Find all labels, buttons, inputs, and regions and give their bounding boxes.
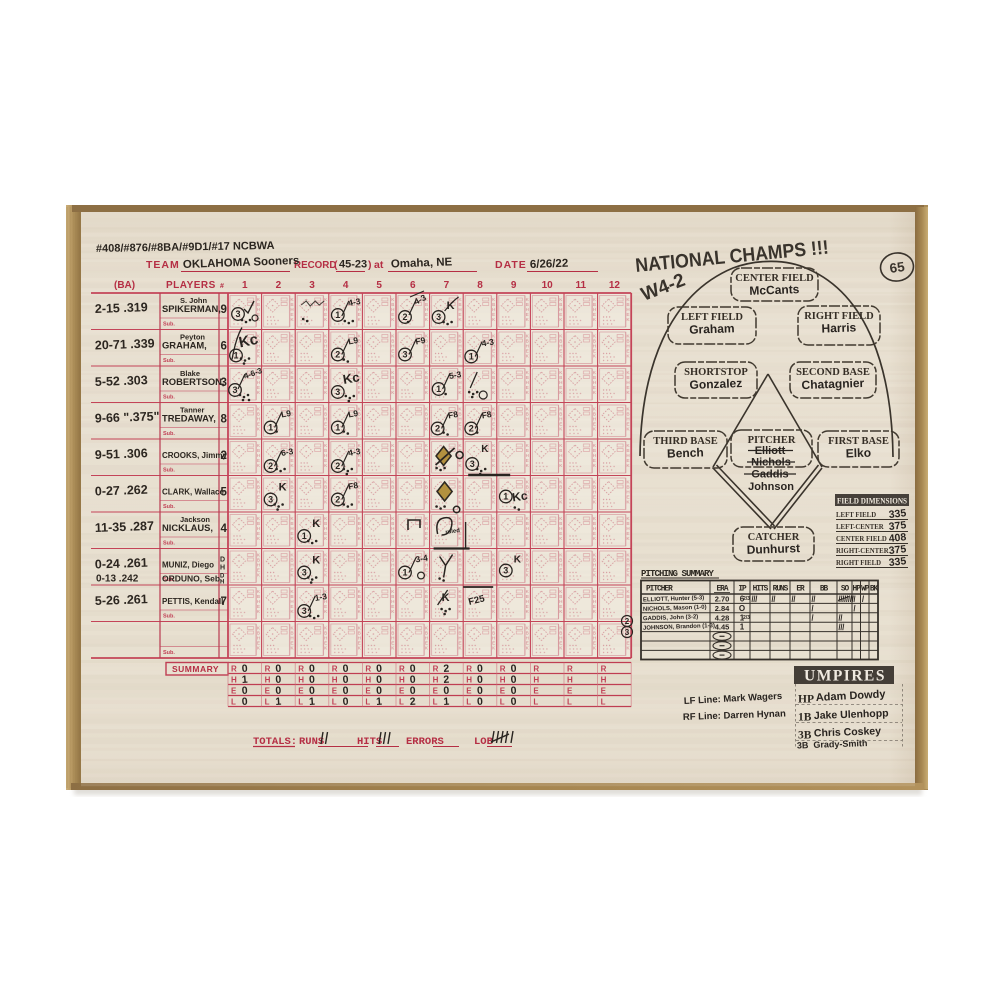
svg-text:11: 11 — [576, 280, 587, 291]
svg-text:LEFT FIELD: LEFT FIELD — [836, 512, 876, 519]
svg-text:H: H — [567, 676, 573, 685]
svg-text:K: K — [481, 444, 489, 455]
svg-text:8: 8 — [221, 414, 228, 426]
svg-text:L: L — [365, 698, 370, 707]
svg-text:R: R — [298, 665, 304, 674]
svg-text:TEAM: TEAM — [146, 259, 180, 271]
svg-text:Sub.: Sub. — [163, 541, 175, 547]
svg-text:2: 2 — [335, 350, 340, 360]
svg-text:H: H — [332, 676, 338, 685]
svg-text:L: L — [298, 698, 303, 707]
svg-text:Omaha, NE: Omaha, NE — [391, 256, 453, 270]
svg-text:1: 1 — [436, 384, 441, 394]
svg-text:12: 12 — [609, 280, 621, 291]
svg-text:5-26 .261: 5-26 .261 — [95, 592, 148, 608]
svg-text:(BA): (BA) — [114, 280, 135, 291]
svg-text:Elko: Elko — [845, 446, 871, 461]
svg-text:K: K — [312, 555, 320, 567]
svg-text:3: 3 — [302, 606, 307, 616]
svg-text:F9: F9 — [415, 335, 427, 347]
svg-text:H: H — [220, 565, 225, 572]
svg-text:TREDAWAY,: TREDAWAY, — [162, 413, 216, 424]
svg-text:H: H — [220, 580, 224, 586]
svg-text:L9: L9 — [347, 335, 359, 347]
svg-text:9: 9 — [221, 304, 227, 316]
svg-text:2: 2 — [435, 424, 440, 434]
svg-text:Chris Coskey: Chris Coskey — [814, 725, 882, 739]
svg-text:7: 7 — [444, 280, 450, 291]
svg-text:1: 1 — [268, 423, 273, 433]
svg-text:E: E — [231, 687, 237, 696]
svg-text:McCants: McCants — [749, 282, 800, 298]
svg-text:Sub.: Sub. — [163, 650, 175, 656]
svg-text:D: D — [220, 557, 225, 564]
svg-text:0-27 .262: 0-27 .262 — [95, 483, 148, 499]
svg-text:RIGHT FIELD: RIGHT FIELD — [836, 560, 881, 567]
svg-text:L: L — [399, 698, 404, 707]
svg-text:335: 335 — [888, 555, 907, 569]
svg-text:6/26/22: 6/26/22 — [530, 258, 569, 271]
svg-text:R: R — [265, 665, 271, 674]
svg-text:2: 2 — [221, 450, 227, 462]
svg-text:R: R — [365, 665, 371, 674]
svg-text:0-24 .261: 0-24 .261 — [95, 556, 148, 572]
svg-text:10: 10 — [542, 280, 554, 291]
svg-text:2.84: 2.84 — [715, 604, 730, 613]
svg-text:1: 1 — [740, 623, 745, 632]
svg-text:2-15 .319: 2-15 .319 — [95, 300, 148, 316]
svg-text:0: 0 — [477, 696, 484, 708]
svg-text:H: H — [365, 676, 371, 685]
svg-text:3: 3 — [436, 312, 441, 322]
svg-text:L: L — [500, 698, 505, 707]
svg-text:1: 1 — [233, 351, 238, 361]
svg-text:Harris: Harris — [821, 320, 856, 335]
svg-text:65: 65 — [889, 259, 906, 276]
svg-text:2: 2 — [402, 312, 407, 322]
svg-text:L9: L9 — [347, 408, 359, 420]
svg-text:Sub.: Sub. — [163, 395, 175, 401]
svg-text:Chatagnier: Chatagnier — [801, 376, 864, 392]
svg-text:H: H — [231, 676, 237, 685]
svg-text:3: 3 — [235, 309, 240, 319]
svg-text:SUMMARY: SUMMARY — [172, 664, 219, 674]
svg-text:E: E — [500, 687, 506, 696]
svg-text:DATE: DATE — [495, 259, 527, 271]
svg-text:1: 1 — [503, 492, 508, 502]
svg-text:H: H — [265, 676, 271, 685]
svg-text:L: L — [265, 698, 270, 707]
svg-text:11-35 .287: 11-35 .287 — [95, 519, 155, 535]
svg-text:1: 1 — [335, 310, 340, 320]
svg-text:H: H — [533, 676, 539, 685]
svg-text:L9: L9 — [280, 408, 292, 420]
svg-text:H: H — [433, 676, 439, 685]
svg-text:R: R — [332, 665, 338, 674]
svg-text:2: 2 — [335, 461, 340, 471]
svg-text:3: 3 — [335, 387, 340, 397]
svg-text:2/3: 2/3 — [743, 596, 750, 602]
svg-text:Sub.: Sub. — [163, 431, 175, 437]
svg-text:3: 3 — [503, 566, 508, 576]
svg-text:E: E — [265, 687, 271, 696]
svg-text:3: 3 — [221, 377, 227, 389]
svg-text:L: L — [533, 698, 538, 707]
svg-text:CROOKS, Jimmy: CROOKS, Jimmy — [162, 451, 227, 460]
svg-text:1: 1 — [309, 696, 316, 708]
svg-text:3: 3 — [625, 628, 630, 637]
svg-text:R: R — [500, 665, 506, 674]
svg-text:E: E — [466, 687, 472, 696]
svg-text:2: 2 — [335, 495, 340, 505]
svg-text:Kc: Kc — [511, 488, 528, 504]
svg-text:R: R — [466, 665, 472, 674]
svg-text:1: 1 — [275, 696, 282, 708]
svg-text:L: L — [231, 698, 236, 707]
svg-text:3: 3 — [309, 280, 315, 291]
svg-text:HP: HP — [798, 694, 814, 706]
svg-text:1: 1 — [335, 423, 340, 433]
svg-text:MUNIZ, Diego: MUNIZ, Diego — [162, 561, 214, 570]
svg-text:R: R — [601, 665, 607, 674]
svg-text:PITCHER: PITCHER — [646, 586, 673, 594]
svg-text:Sub.: Sub. — [163, 358, 175, 364]
svg-text:6: 6 — [221, 341, 227, 353]
svg-text:0-13 .242: 0-13 .242 — [96, 574, 139, 585]
svg-text:SPIKERMAN,: SPIKERMAN, — [162, 303, 221, 314]
svg-text:Sub.: Sub. — [163, 468, 175, 474]
svg-text:F8: F8 — [481, 409, 493, 421]
svg-text:K: K — [514, 555, 522, 566]
svg-text:H: H — [500, 676, 506, 685]
svg-text:O: O — [739, 604, 745, 613]
svg-text:HITS: HITS — [753, 586, 769, 594]
svg-text:H: H — [601, 676, 607, 685]
svg-text:4.45: 4.45 — [715, 623, 730, 632]
svg-text:Johnson: Johnson — [748, 481, 794, 493]
svg-text:9-66 ".375": 9-66 ".375" — [95, 409, 160, 425]
svg-text:0: 0 — [510, 696, 517, 708]
svg-text:H: H — [466, 676, 472, 685]
svg-text:1: 1 — [302, 531, 307, 541]
svg-text:5: 5 — [221, 487, 228, 499]
svg-text:2: 2 — [268, 461, 273, 471]
svg-text:PLAYERS: PLAYERS — [166, 280, 216, 291]
svg-text:E: E — [533, 687, 539, 696]
svg-text:1: 1 — [376, 696, 383, 708]
svg-text:(: ( — [334, 259, 338, 271]
svg-text:H: H — [298, 676, 304, 685]
svg-text:E: E — [567, 687, 573, 696]
svg-text:9-51 .306: 9-51 .306 — [95, 446, 148, 462]
svg-text:FIELD DIMENSIONS: FIELD DIMENSIONS — [837, 497, 907, 506]
svg-text:1B: 1B — [798, 712, 812, 724]
svg-text:CLARK, Wallace: CLARK, Wallace — [162, 488, 224, 497]
svg-text:5-52 .303: 5-52 .303 — [95, 373, 148, 389]
svg-text:E: E — [365, 687, 371, 696]
svg-text:3: 3 — [302, 568, 307, 578]
svg-text:1: 1 — [469, 352, 474, 362]
svg-text:PETTIS, Kendall: PETTIS, Kendall — [162, 597, 223, 606]
svg-text:6: 6 — [410, 280, 416, 291]
svg-text:4.28: 4.28 — [715, 613, 730, 622]
svg-text:1: 1 — [443, 696, 450, 708]
svg-text:RECORD: RECORD — [294, 260, 336, 271]
svg-text:#: # — [220, 283, 224, 290]
svg-text:1: 1 — [402, 568, 407, 578]
svg-text:0: 0 — [241, 696, 248, 708]
svg-text:Kc: Kc — [342, 369, 361, 387]
svg-text:R: R — [399, 665, 405, 674]
svg-text:1: 1 — [242, 280, 248, 291]
svg-text:0: 0 — [342, 696, 349, 708]
svg-text:3: 3 — [268, 495, 273, 505]
svg-text:E: E — [298, 687, 304, 696]
svg-text:ROBERTSON,: ROBERTSON, — [162, 376, 225, 387]
svg-text:Gonzalez: Gonzalez — [689, 376, 742, 392]
svg-text:7: 7 — [221, 596, 227, 608]
svg-text:): ) — [368, 259, 372, 271]
svg-text:E: E — [399, 687, 405, 696]
svg-text:Bench: Bench — [667, 445, 704, 460]
svg-text:2/3: 2/3 — [743, 615, 750, 621]
svg-text:R: R — [433, 665, 439, 674]
svg-text:ORDUNO, Seb.: ORDUNO, Seb. — [162, 574, 222, 584]
svg-text:2: 2 — [625, 617, 630, 626]
svg-text:Sub.: Sub. — [163, 504, 175, 510]
svg-text:F8: F8 — [347, 480, 359, 492]
svg-text:UMPIRES: UMPIRES — [804, 668, 886, 685]
svg-text:K: K — [279, 482, 287, 494]
svg-text:GRAHAM,: GRAHAM, — [162, 340, 207, 351]
svg-text:H: H — [399, 676, 405, 685]
svg-text:3: 3 — [232, 385, 237, 395]
svg-text:K: K — [312, 518, 320, 530]
svg-text:8: 8 — [477, 280, 483, 291]
svg-text:R: R — [567, 665, 573, 674]
svg-text:E: E — [433, 687, 439, 696]
svg-text:F8: F8 — [447, 409, 459, 421]
svg-text:Dunhurst: Dunhurst — [746, 541, 800, 557]
svg-text:RUNS: RUNS — [773, 586, 789, 594]
svg-text:L: L — [601, 698, 606, 707]
svg-text:Sub.: Sub. — [163, 322, 175, 328]
svg-text:4: 4 — [221, 523, 228, 535]
svg-text:L: L — [332, 698, 337, 707]
svg-text:E: E — [332, 687, 338, 696]
svg-text:R: R — [533, 665, 539, 674]
svg-text:9: 9 — [511, 280, 517, 291]
svg-text:E: E — [601, 687, 607, 696]
svg-text:Sub.: Sub. — [163, 614, 175, 620]
svg-text:LEFT-CENTER: LEFT-CENTER — [836, 524, 884, 531]
svg-text:2: 2 — [409, 696, 416, 708]
svg-text:R: R — [231, 665, 237, 674]
svg-text:20-71 .339: 20-71 .339 — [95, 336, 155, 352]
svg-text:CENTER FIELD: CENTER FIELD — [836, 536, 887, 543]
svg-text:4: 4 — [343, 280, 349, 291]
svg-text:2: 2 — [469, 424, 474, 434]
svg-text:3: 3 — [402, 350, 407, 360]
svg-text:L: L — [567, 698, 572, 707]
svg-text:45-23: 45-23 — [339, 259, 367, 271]
svg-text:3: 3 — [470, 459, 475, 469]
svg-text:2.70: 2.70 — [715, 595, 730, 604]
svg-text:2: 2 — [276, 280, 282, 291]
svg-text:Graham: Graham — [689, 321, 735, 337]
svg-text:L: L — [466, 698, 471, 707]
svg-text:5: 5 — [376, 280, 382, 291]
svg-text:at: at — [374, 259, 384, 271]
svg-text:NICKLAUS,: NICKLAUS, — [162, 522, 213, 533]
svg-text:L: L — [433, 698, 438, 707]
svg-text:RIGHT-CENTER: RIGHT-CENTER — [836, 548, 889, 555]
